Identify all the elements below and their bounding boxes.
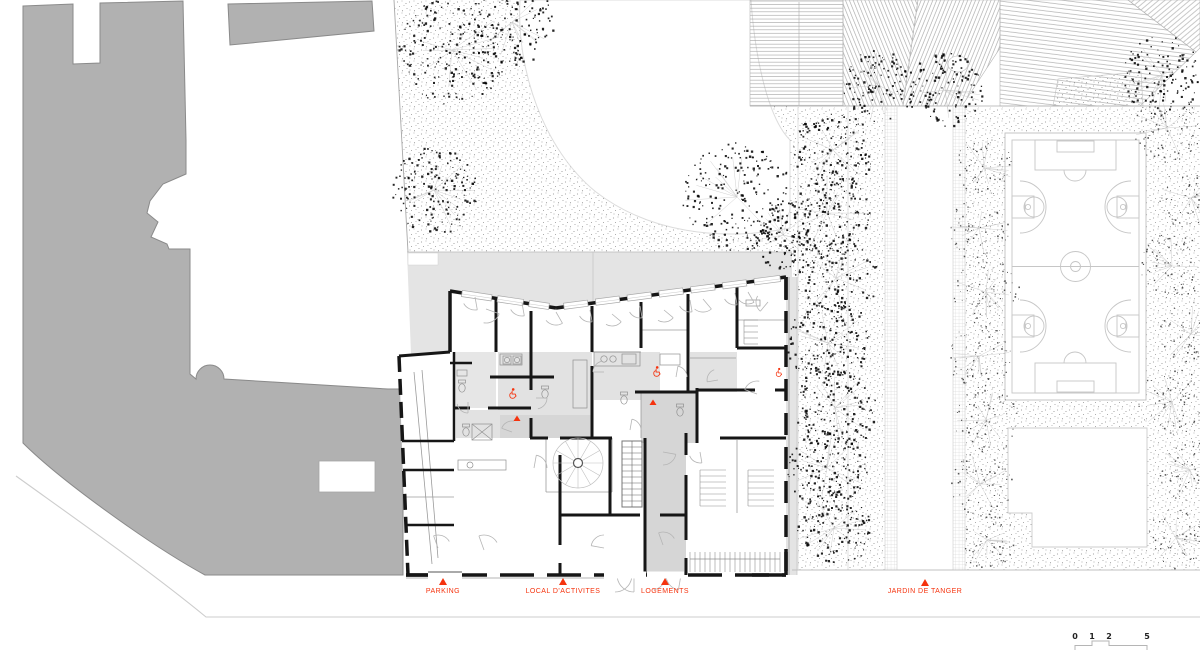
city-block-mass-north (228, 1, 374, 45)
scale-bar: 0 1 2 5 (1072, 632, 1150, 650)
entrance-label: LOCAL D'ACTIVITES (526, 588, 601, 595)
neighbor-roofs (750, 0, 1200, 106)
entrance-label: PARKING (426, 588, 460, 595)
direction-triangle-icon (921, 579, 929, 586)
entrance-labels: PARKING LOCAL D'ACTIVITES LOGEMENTS JARD… (426, 578, 962, 595)
main-building-plan (399, 275, 789, 592)
scale-tick: 0 (1072, 632, 1078, 641)
jardin-de-tanger-garden (786, 107, 1200, 575)
scale-tick: 1 (1089, 632, 1095, 641)
courtyard-cutout (319, 461, 375, 492)
label-parking: PARKING (426, 578, 460, 595)
label-local-activites: LOCAL D'ACTIVITES (526, 578, 601, 595)
scale-tick: 5 (1144, 632, 1150, 641)
direction-triangle-icon (439, 578, 447, 585)
site-plan: PARKING LOCAL D'ACTIVITES LOGEMENTS JARD… (0, 0, 1200, 655)
label-jardin-de-tanger: JARDIN DE TANGER (888, 579, 963, 595)
entrance-label: LOGEMENTS (641, 588, 689, 595)
walkway (885, 107, 965, 570)
sports-court (1005, 133, 1146, 400)
context-building-masses (23, 1, 403, 575)
label-logements: LOGEMENTS (641, 578, 689, 595)
site-plan-canvas: PARKING LOCAL D'ACTIVITES LOGEMENTS JARD… (0, 0, 1200, 655)
entrance-label: JARDIN DE TANGER (888, 588, 963, 595)
scale-tick: 2 (1106, 632, 1112, 641)
direction-triangle-icon (559, 578, 567, 585)
